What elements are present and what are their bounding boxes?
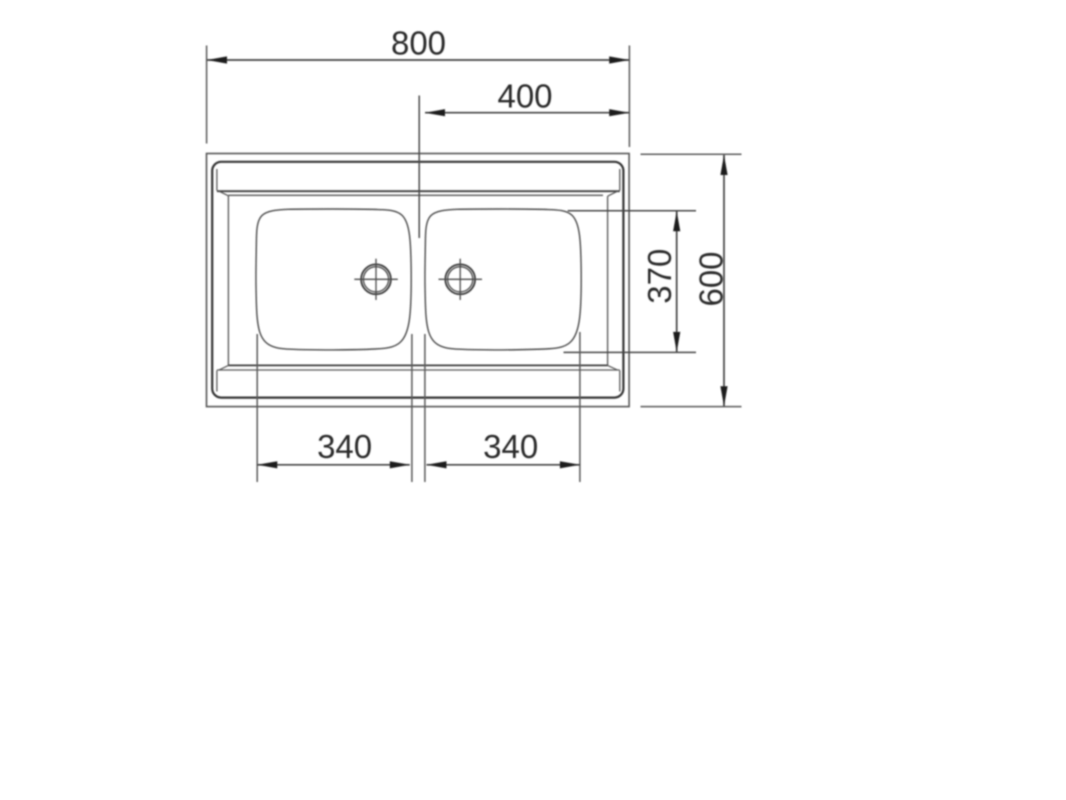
svg-text:800: 800: [391, 25, 446, 62]
svg-text:400: 400: [497, 78, 552, 115]
svg-text:600: 600: [693, 251, 730, 306]
svg-text:340: 340: [317, 428, 372, 465]
svg-text:370: 370: [641, 249, 678, 304]
svg-text:340: 340: [483, 428, 538, 465]
